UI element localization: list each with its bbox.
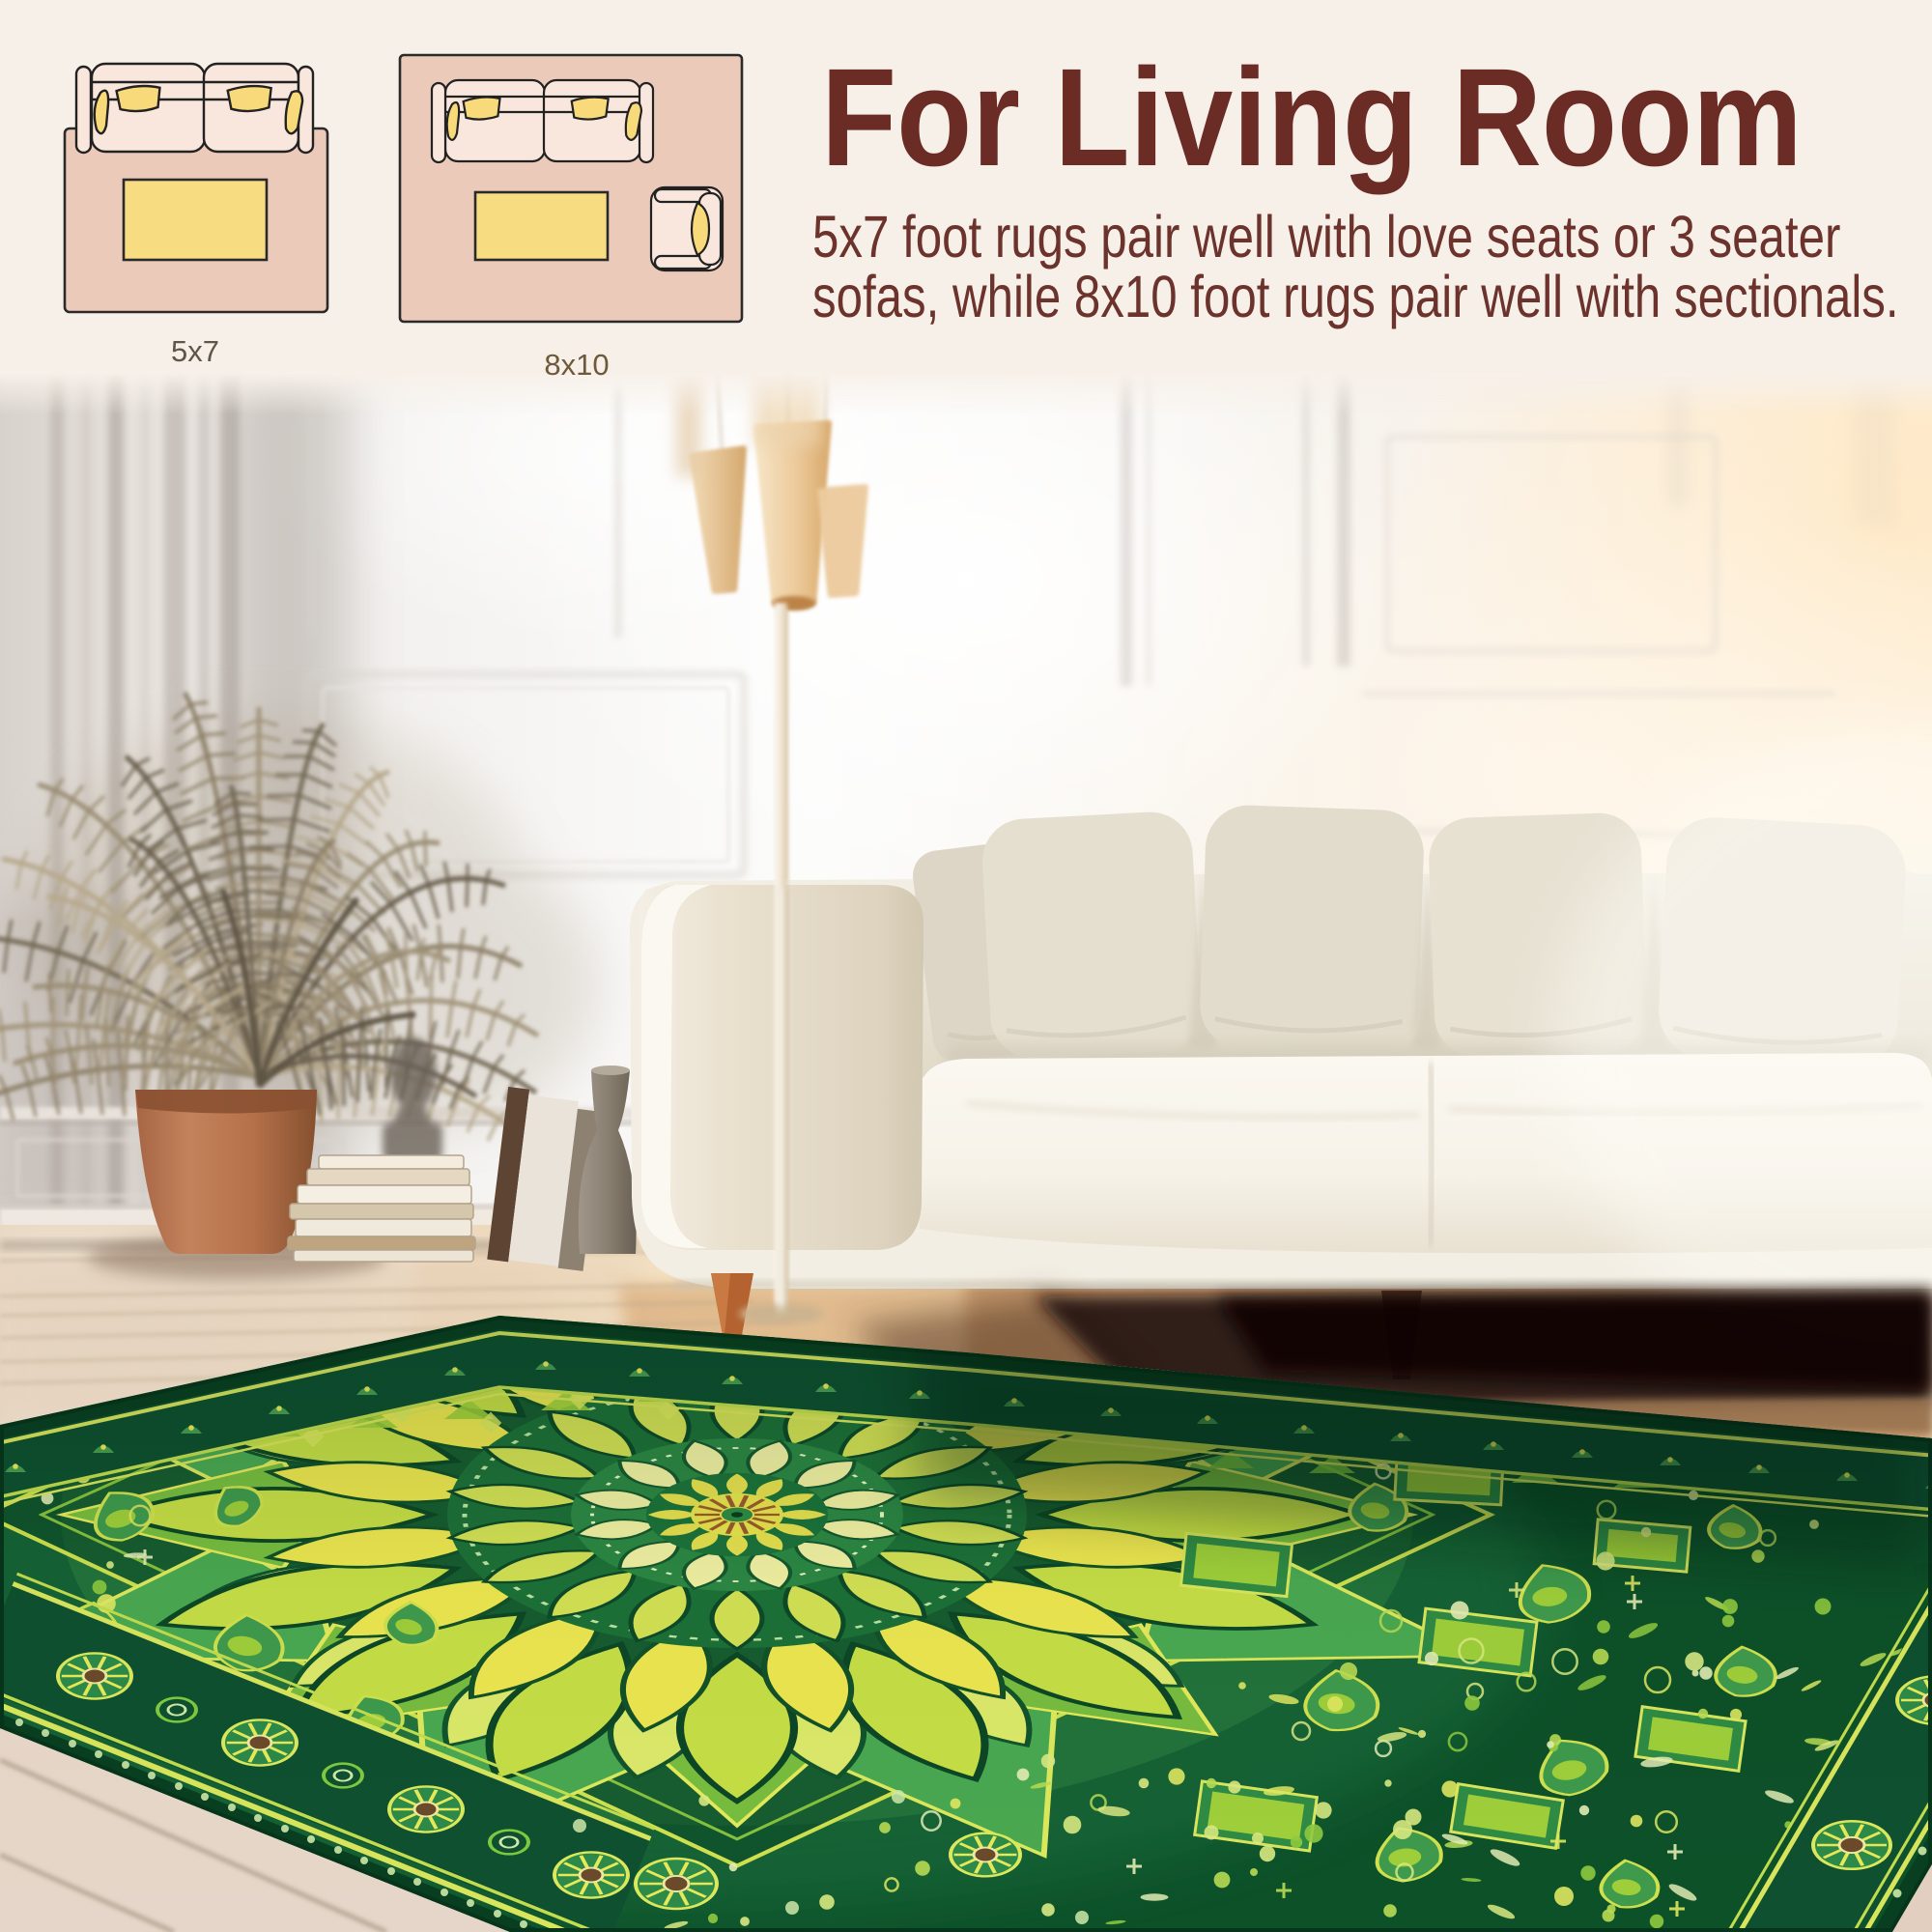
svg-text:8x10: 8x10: [544, 348, 609, 382]
